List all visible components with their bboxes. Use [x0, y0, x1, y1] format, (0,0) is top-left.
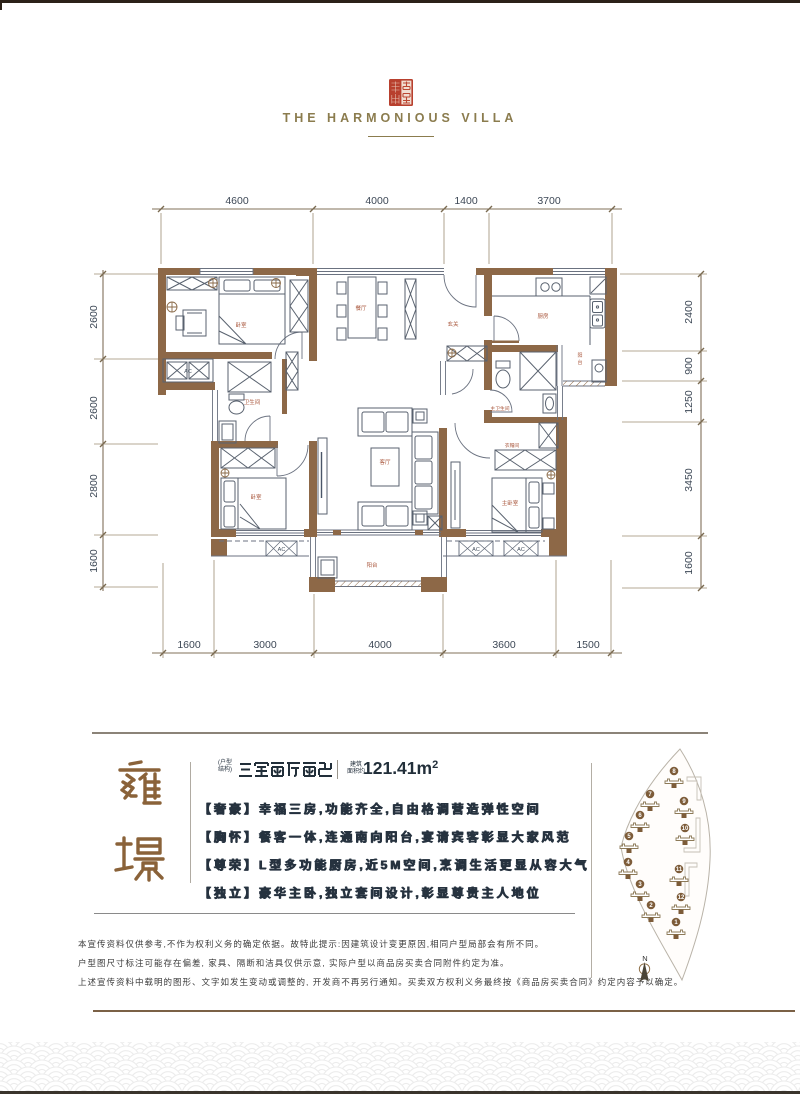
svg-text:台: 台 — [577, 359, 582, 366]
svg-text:卧室: 卧室 — [250, 493, 262, 501]
svg-text:客厅: 客厅 — [379, 458, 391, 466]
svg-text:卧室: 卧室 — [235, 321, 247, 329]
svg-text:N: N — [642, 954, 647, 963]
svg-text:阳台: 阳台 — [366, 561, 378, 569]
svg-text:AC: AC — [517, 547, 525, 553]
svg-text:1600: 1600 — [88, 549, 100, 573]
svg-text:卫生间: 卫生间 — [244, 398, 261, 406]
svg-text:3700: 3700 — [537, 195, 561, 207]
svg-text:2600: 2600 — [88, 305, 100, 329]
svg-text:3600: 3600 — [492, 639, 516, 651]
svg-text:主卫生间: 主卫生间 — [490, 405, 509, 412]
svg-text:阳: 阳 — [577, 352, 582, 359]
svg-text:4000: 4000 — [368, 639, 392, 651]
svg-text:衣帽间: 衣帽间 — [505, 442, 520, 449]
svg-text:11: 11 — [676, 867, 683, 873]
svg-text:AC: AC — [184, 369, 192, 375]
svg-text:2600: 2600 — [88, 396, 100, 420]
svg-text:1400: 1400 — [454, 195, 478, 207]
svg-text:AC: AC — [472, 547, 480, 553]
svg-text:4600: 4600 — [225, 195, 249, 207]
svg-text:主卧室: 主卧室 — [502, 499, 519, 507]
svg-text:餐厅: 餐厅 — [355, 304, 367, 312]
svg-text:1600: 1600 — [177, 639, 201, 651]
svg-text:900: 900 — [683, 357, 695, 375]
svg-text:12: 12 — [678, 895, 685, 901]
svg-text:1600: 1600 — [683, 551, 695, 575]
svg-text:4000: 4000 — [365, 195, 389, 207]
svg-text:3000: 3000 — [253, 639, 277, 651]
svg-text:厨房: 厨房 — [537, 312, 549, 320]
svg-text:3450: 3450 — [683, 468, 695, 492]
svg-text:1500: 1500 — [576, 639, 600, 651]
svg-text:1250: 1250 — [683, 390, 695, 414]
svg-text:2400: 2400 — [683, 300, 695, 324]
svg-text:AC: AC — [278, 547, 286, 553]
svg-text:2800: 2800 — [88, 474, 100, 498]
svg-text:10: 10 — [682, 826, 689, 832]
svg-text:玄关: 玄关 — [447, 320, 459, 328]
